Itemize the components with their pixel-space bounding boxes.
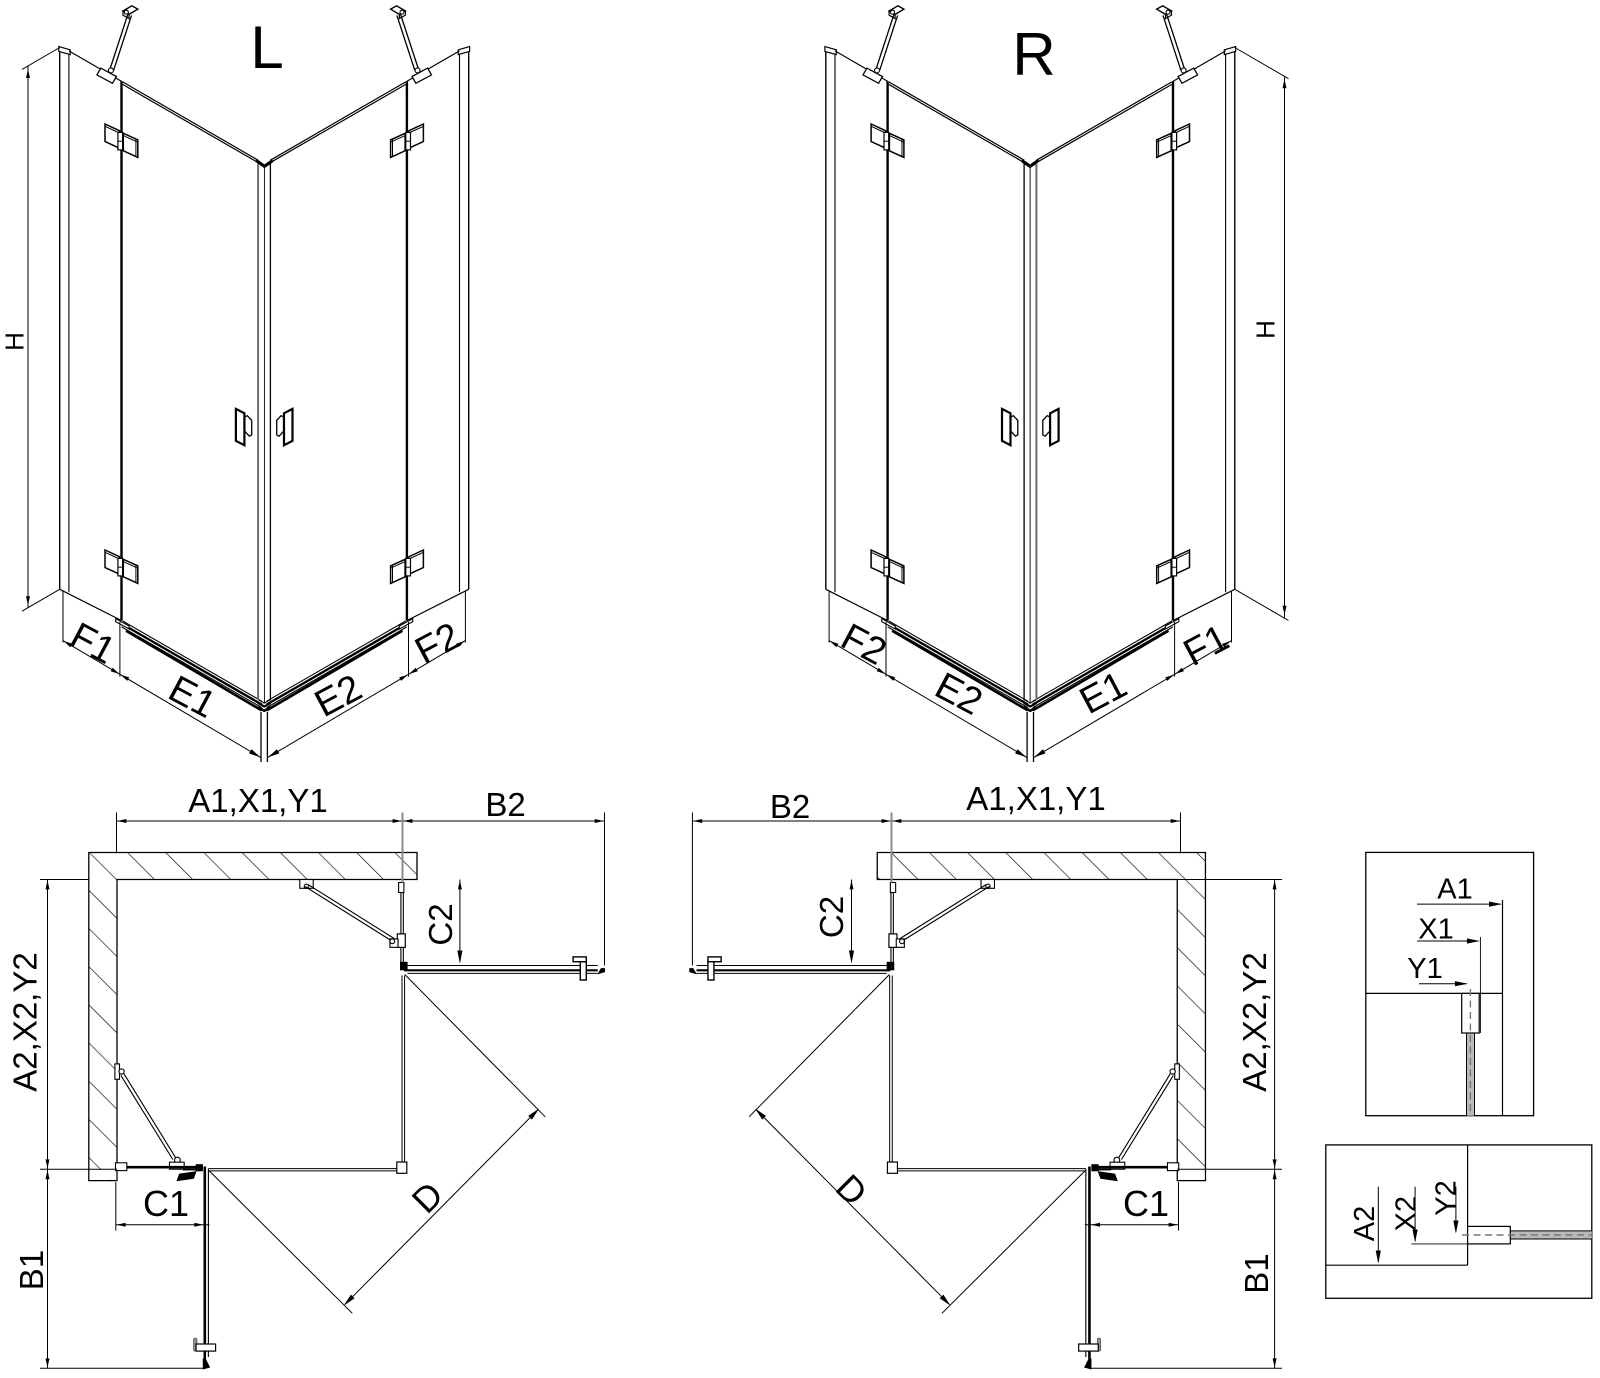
svg-text:X2: X2 <box>1390 1196 1422 1231</box>
svg-text:B2: B2 <box>770 788 810 825</box>
svg-text:B1: B1 <box>1238 1253 1275 1293</box>
svg-text:X1: X1 <box>1418 913 1453 945</box>
svg-text:B1: B1 <box>13 1250 50 1290</box>
svg-text:A1,X1,Y1: A1,X1,Y1 <box>188 782 327 819</box>
svg-text:A1,X1,Y1: A1,X1,Y1 <box>966 780 1105 817</box>
svg-text:Y1: Y1 <box>1407 953 1442 985</box>
svg-text:C1: C1 <box>1123 1183 1169 1224</box>
svg-text:B2: B2 <box>485 786 525 823</box>
svg-text:C2: C2 <box>813 896 850 938</box>
svg-text:H: H <box>0 332 29 351</box>
svg-text:A2: A2 <box>1349 1206 1381 1241</box>
svg-text:L: L <box>250 14 283 81</box>
svg-text:R: R <box>1012 21 1055 88</box>
svg-text:A1: A1 <box>1437 873 1472 905</box>
svg-text:C2: C2 <box>422 903 459 945</box>
svg-text:H: H <box>1250 320 1280 339</box>
svg-text:C1: C1 <box>143 1183 189 1224</box>
svg-text:Y2: Y2 <box>1430 1180 1462 1215</box>
svg-text:A2,X2,Y2: A2,X2,Y2 <box>1236 952 1273 1091</box>
svg-text:A2,X2,Y2: A2,X2,Y2 <box>6 952 43 1091</box>
